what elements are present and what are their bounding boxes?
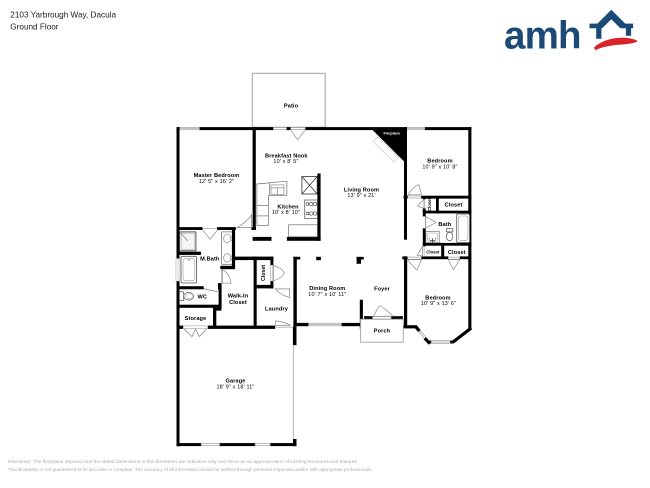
svg-text:10' x 8' 5": 10' x 8' 5" <box>273 159 298 165</box>
svg-text:Closet: Closet <box>261 265 267 281</box>
svg-text:Patio: Patio <box>284 103 299 109</box>
svg-text:amh: amh <box>504 15 581 58</box>
svg-text:2103 Yarbrough Way, Dacula: 2103 Yarbrough Way, Dacula <box>10 11 116 20</box>
svg-text:Closet: Closet <box>426 250 440 255</box>
svg-text:Foyer: Foyer <box>374 286 391 292</box>
svg-text:10' x 8' 10": 10' x 8' 10" <box>272 210 300 216</box>
svg-text:This illustration is not guara: This illustration is not guaranteed to b… <box>8 467 373 472</box>
svg-text:WC: WC <box>198 294 208 300</box>
svg-text:Fireplace: Fireplace <box>383 132 400 136</box>
svg-text:18' 9" x 18' 11": 18' 9" x 18' 11" <box>216 385 254 391</box>
svg-text:Porch: Porch <box>374 329 391 335</box>
svg-text:Storage: Storage <box>185 316 207 322</box>
svg-text:10' 7" x 10' 11": 10' 7" x 10' 11" <box>308 292 346 298</box>
svg-text:Closet: Closet <box>445 203 463 209</box>
svg-text:Closet: Closet <box>229 300 247 306</box>
svg-text:13' 9" x 21': 13' 9" x 21' <box>347 193 375 199</box>
svg-text:10' 9" x 10' 8": 10' 9" x 10' 8" <box>422 164 457 170</box>
svg-text:Laundry: Laundry <box>265 307 289 313</box>
svg-text:Closet: Closet <box>448 250 466 256</box>
svg-text:Ground Floor: Ground Floor <box>10 23 59 32</box>
svg-text:12' 5" x 16' 2": 12' 5" x 16' 2" <box>199 179 234 185</box>
svg-text:10' 9" x 13' 6": 10' 9" x 13' 6" <box>421 301 456 307</box>
svg-text:Closet: Closet <box>427 197 432 211</box>
svg-text:M.Bath: M.Bath <box>200 257 220 263</box>
svg-text:Bath: Bath <box>438 222 451 228</box>
svg-text:Walk-In: Walk-In <box>228 294 249 300</box>
svg-text:Disclaimer: The floorplans dep: Disclaimer: The floorplans depicted and … <box>8 459 358 465</box>
